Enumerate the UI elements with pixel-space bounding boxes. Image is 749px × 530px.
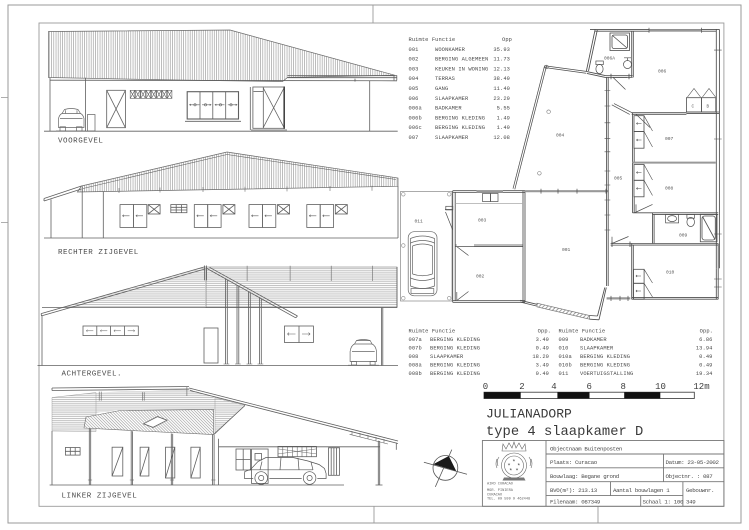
svg-text:006a: 006a bbox=[409, 106, 423, 112]
svg-text:Opp.: Opp. bbox=[538, 329, 551, 335]
svg-text:6: 6 bbox=[586, 382, 591, 392]
svg-text:JULIANADORP: JULIANADORP bbox=[486, 407, 572, 422]
svg-text:3.49: 3.49 bbox=[536, 363, 549, 369]
svg-text:Plaats: Curacao: Plaats: Curacao bbox=[550, 459, 598, 466]
svg-text:ACHTERGEVEL.: ACHTERGEVEL. bbox=[62, 371, 123, 379]
svg-text:4: 4 bbox=[551, 382, 556, 392]
svg-text:BERGING KLEDING: BERGING KLEDING bbox=[435, 115, 485, 121]
svg-text:011: 011 bbox=[559, 371, 569, 377]
svg-text:★: ★ bbox=[515, 467, 518, 473]
svg-text:Gebouwnr.: Gebouwnr. bbox=[686, 487, 714, 494]
svg-text:Aantal bouwlagen 1: Aantal bouwlagen 1 bbox=[613, 487, 670, 494]
svg-text:003: 003 bbox=[478, 218, 487, 224]
svg-text:BERGING KLEDING: BERGING KLEDING bbox=[430, 346, 480, 352]
svg-text:009: 009 bbox=[559, 337, 569, 343]
svg-text:11.73: 11.73 bbox=[493, 57, 510, 63]
svg-text:Filenaam: 087349: Filenaam: 087349 bbox=[550, 499, 601, 506]
svg-text:008: 008 bbox=[665, 186, 674, 192]
svg-text:1.49: 1.49 bbox=[497, 115, 510, 121]
svg-text:008: 008 bbox=[409, 354, 419, 360]
svg-text:003: 003 bbox=[409, 66, 419, 72]
svg-text:011: 011 bbox=[415, 219, 424, 225]
svg-text:0.49: 0.49 bbox=[699, 363, 712, 369]
svg-text:006: 006 bbox=[409, 96, 419, 102]
svg-text:BERGING KLEDING: BERGING KLEDING bbox=[580, 354, 630, 360]
svg-text:GANG: GANG bbox=[435, 86, 448, 92]
svg-text:Schaal 1: 100: Schaal 1: 100 bbox=[643, 499, 685, 506]
svg-text:BERGING KLEDING: BERGING KLEDING bbox=[430, 371, 480, 377]
svg-text:★: ★ bbox=[512, 458, 515, 464]
svg-text:Ruimte Functie: Ruimte Functie bbox=[409, 37, 456, 43]
svg-text:009: 009 bbox=[679, 233, 688, 239]
svg-text:11.40: 11.40 bbox=[493, 86, 510, 92]
svg-text:002: 002 bbox=[476, 274, 485, 280]
svg-text:BVO(m²): 213.13: BVO(m²): 213.13 bbox=[550, 487, 598, 494]
svg-text:VOERTUIGSTALLING: VOERTUIGSTALLING bbox=[580, 371, 633, 377]
svg-text:001: 001 bbox=[409, 47, 419, 53]
svg-text:LINKER ZIJGEVEL: LINKER ZIJGEVEL bbox=[62, 493, 138, 501]
svg-text:VOORGEVEL: VOORGEVEL bbox=[58, 138, 103, 146]
svg-text:10: 10 bbox=[655, 382, 666, 392]
svg-text:349: 349 bbox=[686, 499, 696, 506]
svg-text:006: 006 bbox=[658, 69, 667, 75]
svg-text:007: 007 bbox=[665, 136, 674, 142]
svg-text:002: 002 bbox=[409, 57, 419, 63]
svg-text:TEL. 09 599 9 462448: TEL. 09 599 9 462448 bbox=[487, 498, 530, 502]
svg-text:010a: 010a bbox=[559, 354, 573, 360]
svg-text:Bouwlaag: Begane grond: Bouwlaag: Begane grond bbox=[550, 473, 619, 480]
svg-text:23.29: 23.29 bbox=[493, 96, 510, 102]
svg-text:004: 004 bbox=[409, 76, 419, 82]
svg-text:12.08: 12.08 bbox=[493, 135, 510, 141]
svg-text:010: 010 bbox=[666, 270, 675, 276]
svg-text:WOONKAMER: WOONKAMER bbox=[435, 47, 466, 53]
svg-text:SLAAPKAMER: SLAAPKAMER bbox=[435, 96, 469, 102]
svg-text:007a: 007a bbox=[409, 337, 423, 343]
svg-text:0: 0 bbox=[483, 382, 488, 392]
svg-text:BADKAMER: BADKAMER bbox=[580, 337, 607, 343]
svg-text:006b: 006b bbox=[409, 115, 422, 121]
svg-text:Ruimte Functie: Ruimte Functie bbox=[409, 329, 456, 335]
svg-text:010b: 010b bbox=[559, 363, 572, 369]
svg-text:TERRAS: TERRAS bbox=[435, 76, 455, 82]
svg-text:SLAAPKAMER: SLAAPKAMER bbox=[430, 354, 464, 360]
svg-text:Datum: 23-05-2002: Datum: 23-05-2002 bbox=[666, 459, 720, 466]
svg-text:5.55: 5.55 bbox=[497, 106, 510, 112]
svg-text:3.49: 3.49 bbox=[536, 337, 549, 343]
svg-text:SLAAPKAMER: SLAAPKAMER bbox=[435, 135, 469, 141]
svg-text:Opp.: Opp. bbox=[700, 329, 713, 335]
svg-text:13.94: 13.94 bbox=[696, 346, 713, 352]
svg-text:BERGING KLEDING: BERGING KLEDING bbox=[435, 125, 485, 131]
svg-text:8: 8 bbox=[620, 382, 625, 392]
svg-text:KEUKEN IN WONING: KEUKEN IN WONING bbox=[435, 66, 488, 72]
svg-text:006c: 006c bbox=[409, 125, 422, 131]
svg-text:type 4 slaapkamer D: type 4 slaapkamer D bbox=[486, 424, 643, 440]
svg-text:006A: 006A bbox=[604, 56, 615, 62]
svg-text:Objectnr. : 087: Objectnr. : 087 bbox=[666, 473, 714, 480]
svg-text:Objectnaam Buitenposten: Objectnaam Buitenposten bbox=[550, 446, 622, 453]
svg-text:RECHTER ZIJGEVEL: RECHTER ZIJGEVEL bbox=[58, 249, 139, 257]
svg-text:AIRO CURACAO: AIRO CURACAO bbox=[487, 483, 513, 487]
svg-text:005: 005 bbox=[409, 86, 419, 92]
svg-text:12m: 12m bbox=[693, 382, 709, 392]
svg-text:0.49: 0.49 bbox=[536, 371, 549, 377]
svg-text:2: 2 bbox=[519, 382, 524, 392]
svg-text:19.34: 19.34 bbox=[696, 371, 713, 377]
svg-text:BERGING KLEDING: BERGING KLEDING bbox=[430, 337, 480, 343]
svg-text:1.49: 1.49 bbox=[497, 125, 510, 131]
svg-text:008b: 008b bbox=[409, 371, 422, 377]
svg-text:Opp: Opp bbox=[502, 37, 512, 43]
svg-text:007: 007 bbox=[409, 135, 419, 141]
svg-text:0.49: 0.49 bbox=[699, 354, 712, 360]
svg-text:12.13: 12.13 bbox=[493, 66, 510, 72]
svg-text:BADKAMER: BADKAMER bbox=[435, 106, 462, 112]
svg-text:007b: 007b bbox=[409, 346, 422, 352]
svg-text:005: 005 bbox=[614, 176, 623, 182]
svg-text:001: 001 bbox=[562, 247, 571, 253]
svg-text:BERGING KLEDING: BERGING KLEDING bbox=[580, 363, 630, 369]
svg-text:18.20: 18.20 bbox=[532, 354, 549, 360]
svg-text:6.86: 6.86 bbox=[699, 337, 712, 343]
svg-text:Ruimte Functie: Ruimte Functie bbox=[559, 329, 606, 335]
svg-text:SLAAPKAMER: SLAAPKAMER bbox=[580, 346, 614, 352]
svg-text:010: 010 bbox=[559, 346, 569, 352]
svg-text:38.49: 38.49 bbox=[493, 76, 510, 82]
svg-text:BERGING ALGEMEEN: BERGING ALGEMEEN bbox=[435, 57, 488, 63]
svg-text:35.93: 35.93 bbox=[493, 47, 510, 53]
svg-text:0.49: 0.49 bbox=[536, 346, 549, 352]
svg-text:008a: 008a bbox=[409, 363, 423, 369]
svg-text:★: ★ bbox=[509, 467, 512, 473]
svg-text:004: 004 bbox=[556, 133, 565, 139]
svg-text:BERGING KLEDING: BERGING KLEDING bbox=[430, 363, 480, 369]
